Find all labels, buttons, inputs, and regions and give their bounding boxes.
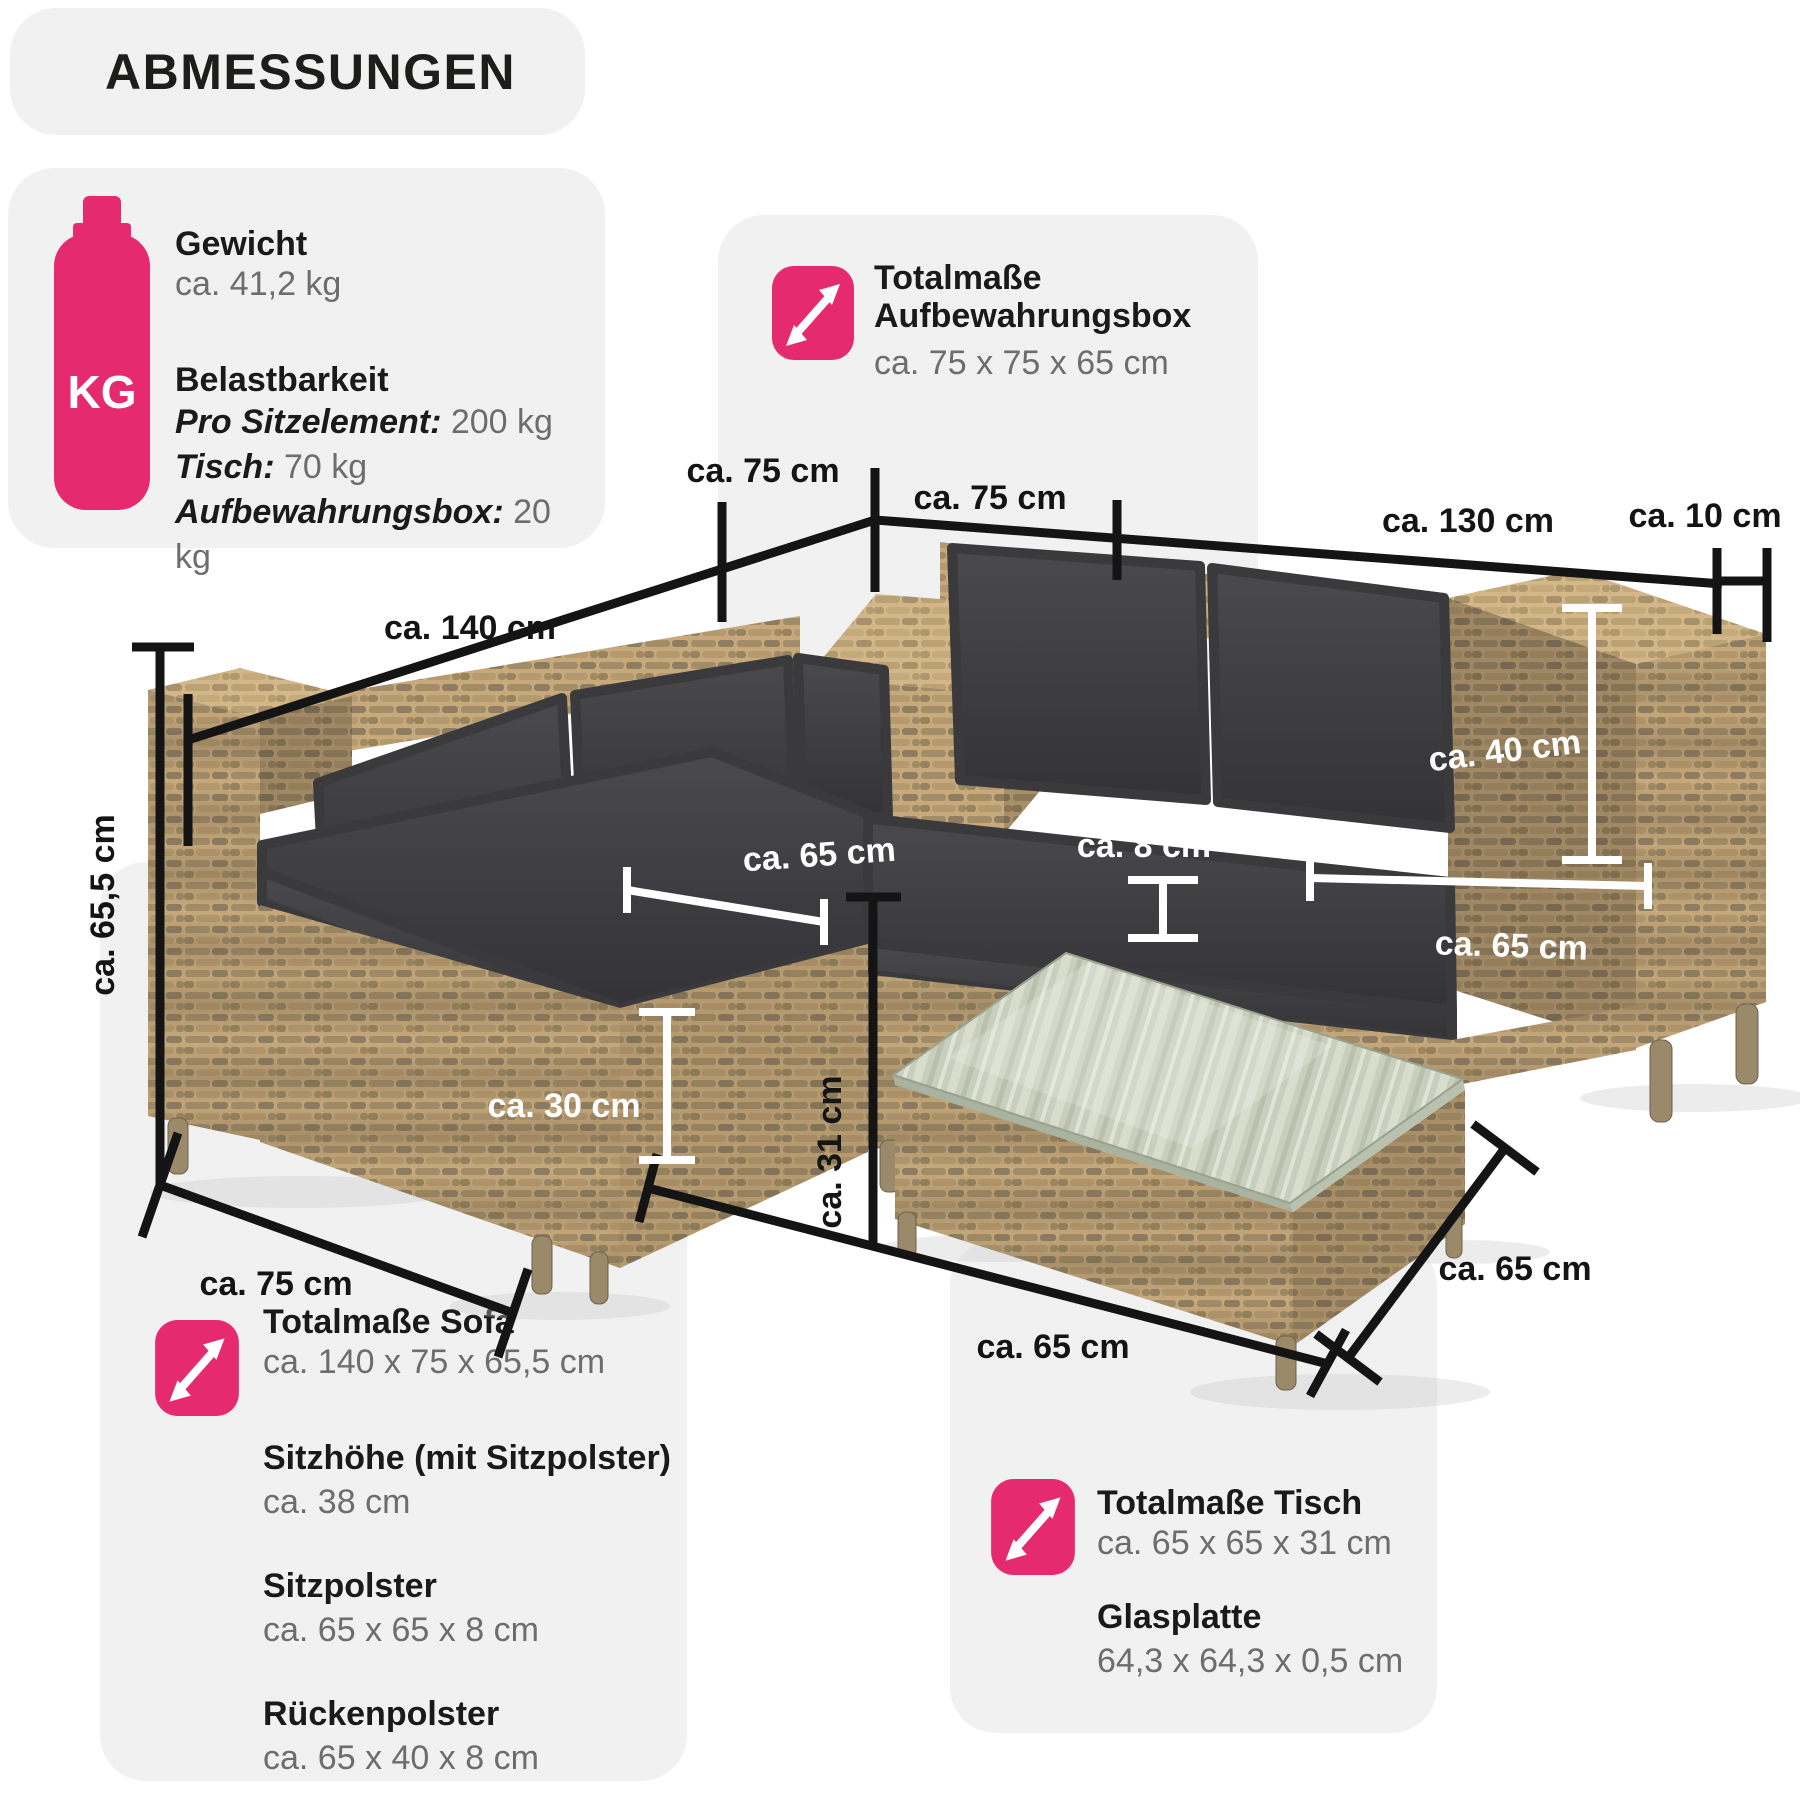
sofa-detail-back-cushion: Rückenpolster ca. 65 x 40 x 8 cm: [263, 1692, 703, 1780]
back-cushion: [798, 658, 888, 818]
sofa-detail-seat-height: Sitzhöhe (mit Sitzpolster) ca. 38 cm: [263, 1436, 703, 1524]
dim-table-height: ca. 31 cm: [811, 1075, 849, 1228]
diagonal-arrows-icon: [991, 1479, 1075, 1575]
dimensions-infographic: ABMESSUNGEN KG Gewicht ca. 41,2 kg Belas…: [0, 0, 1800, 1800]
load-row-box: Aufbewahrungsbox: 20 kg: [175, 490, 595, 580]
diagonal-arrows-icon: [155, 1320, 239, 1416]
glass-top: [893, 953, 1463, 1203]
kg-bottle-label: KG: [68, 366, 137, 418]
diagonal-arrows-icon: [772, 266, 854, 360]
storage-box-panel: Totalmaße Aufbewahrungsbox ca. 75 x 75 x…: [718, 215, 1258, 660]
load-row-seat: Pro Sitzelement: 200 kg: [175, 400, 595, 445]
annotation-lines: [627, 608, 1648, 1160]
ann-seat-width-right: ca. 65 cm: [1434, 924, 1588, 967]
storage-value: ca. 75 x 75 x 65 cm: [874, 343, 1254, 383]
kg-bottle-icon: KG: [52, 196, 152, 514]
weight-value: ca. 41,2 kg: [175, 264, 595, 304]
storage-title-line1: Totalmaße: [874, 259, 1254, 297]
dim-left-length: ca. 140 cm: [384, 609, 556, 647]
sofa-value: ca. 140 x 75 x 65,5 cm: [263, 1342, 683, 1382]
load-title: Belastbarkeit: [175, 360, 595, 400]
sofa-right-base: [845, 972, 1636, 1192]
seat-cushion: [845, 816, 1452, 1010]
sofa-title: Totalmaße Sofa: [263, 1302, 683, 1342]
page-title: ABMESSUNGEN: [105, 43, 516, 101]
dim-table-side: ca. 65 cm: [1438, 1250, 1591, 1288]
storage-title-line2: Aufbewahrungsbox: [874, 297, 1254, 335]
dim-right-length: ca. 130 cm: [1382, 502, 1554, 540]
sofa-left-back-rail: [222, 616, 800, 772]
ann-cushion-thickness: ca. 8 cm: [1077, 827, 1211, 865]
glass-value: 64,3 x 64,3 x 0,5 cm: [1097, 1639, 1427, 1683]
sofa-panel: Totalmaße Sofa ca. 140 x 75 x 65,5 cm Si…: [100, 862, 687, 1781]
weight-panel: KG Gewicht ca. 41,2 kg Belastbarkeit Pro…: [8, 168, 605, 548]
glass-title: Glasplatte: [1097, 1595, 1427, 1639]
dim-arm-width: ca. 10 cm: [1628, 497, 1781, 535]
sofa-detail-seat-cushion: Sitzpolster ca. 65 x 65 x 8 cm: [263, 1564, 703, 1652]
table-title: Totalmaße Tisch: [1097, 1483, 1427, 1523]
ann-seat-width-left: ca. 65 cm: [742, 831, 897, 880]
sofa-right-arm: [1448, 570, 1766, 1122]
ann-back-cushion-height: ca. 40 cm: [1426, 723, 1583, 779]
header-panel: ABMESSUNGEN: [10, 8, 585, 135]
table-value: ca. 65 x 65 x 31 cm: [1097, 1523, 1427, 1563]
back-cushion: [575, 660, 794, 846]
weight-title: Gewicht: [175, 224, 595, 264]
table-panel: Totalmaße Tisch ca. 65 x 65 x 31 cm Glas…: [950, 1240, 1437, 1733]
load-row-table: Tisch: 70 kg: [175, 445, 595, 490]
seat-cushion-edge: [845, 940, 1452, 1042]
